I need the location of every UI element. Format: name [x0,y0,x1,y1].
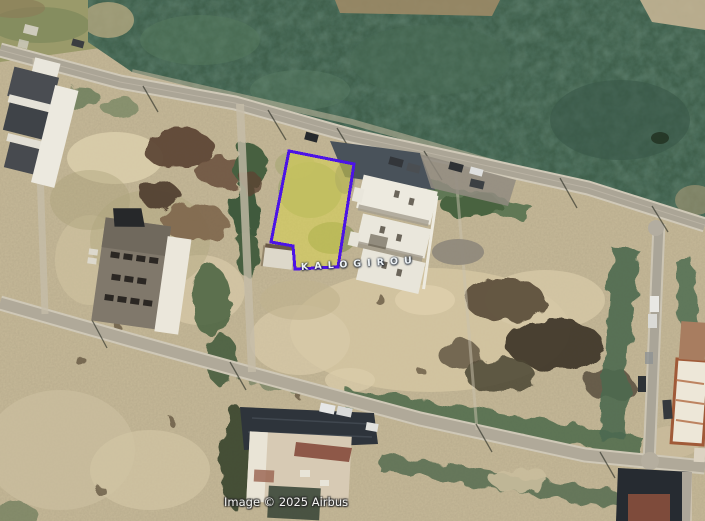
satellite-map-view[interactable]: KALOGIROU Image © 2025 Airbus [0,0,705,521]
imagery-attribution: Image © 2025 Airbus [224,495,348,509]
building-notch [261,243,295,270]
